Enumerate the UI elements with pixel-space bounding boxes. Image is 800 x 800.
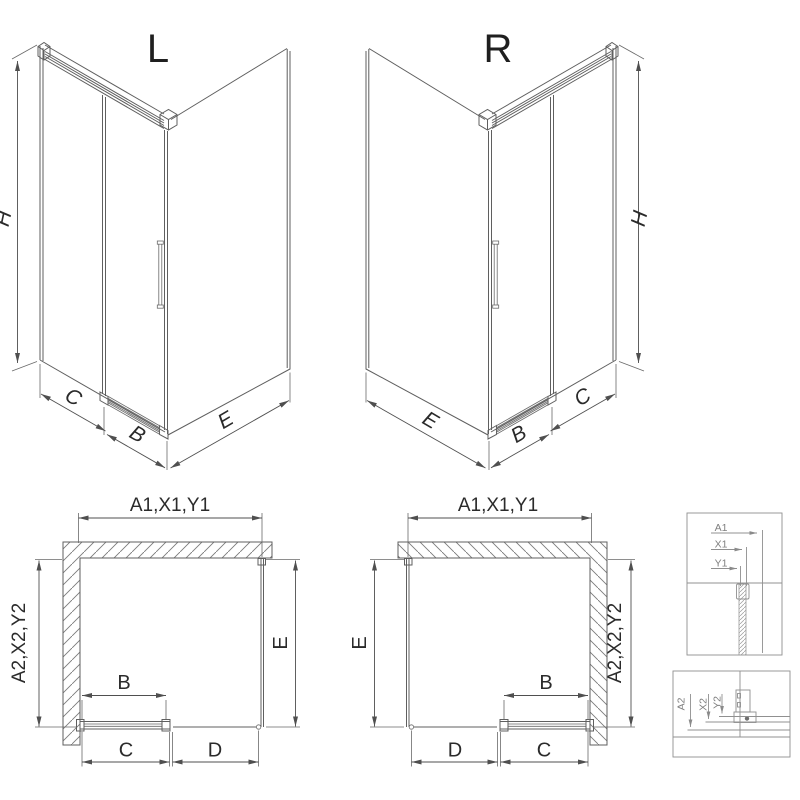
variant-label-right: R xyxy=(484,27,513,71)
plan-view-left: A1,X1,Y1 A2,X2,Y2 E B C D xyxy=(9,495,300,767)
variant-label-left: L xyxy=(147,27,169,71)
iso-view-right: R H E B C xyxy=(366,27,653,470)
wall-depth-dim-label: A2,X2,Y2 xyxy=(9,603,30,683)
detail-dim-a1-label: A1 xyxy=(715,522,728,534)
bottom-dim-c-label: C xyxy=(119,740,133,762)
roller-dot xyxy=(745,716,749,720)
width-dim-label: A1,X1,Y1 xyxy=(130,495,210,516)
shower-enclosure-technical-drawing: L H C B E R H E B C A1,X1,Y1 A2,X2,Y2 E … xyxy=(0,0,800,800)
height-dim-label: H xyxy=(627,208,653,228)
detail-dim-y1-label: Y1 xyxy=(715,558,728,570)
detail-dim-x2-label: X2 xyxy=(698,698,710,711)
width-dim-label: A1,X1,Y1 xyxy=(458,495,538,516)
drawing-sheet: L H C B E R H E B C A1,X1,Y1 A2,X2,Y2 E … xyxy=(0,0,800,800)
glass-depth-dim-label: E xyxy=(270,636,292,649)
return-panel-dim-label: E xyxy=(418,407,443,434)
detail-bottom-profile: A2 X2 Y2 xyxy=(673,671,790,757)
height-dim-label: H xyxy=(0,208,17,228)
door-dim-label: B xyxy=(507,421,531,448)
plan-view-right: A1,X1,Y1 A2,X2,Y2 E B D C xyxy=(349,495,635,767)
detail-dim-x1-label: X1 xyxy=(715,539,728,551)
wall-depth-dim-label: A2,X2,Y2 xyxy=(605,603,626,683)
door-dim-label: B xyxy=(117,672,130,694)
iso-view-left: L H C B E xyxy=(0,27,290,470)
detail-dim-a2-label: A2 xyxy=(676,697,688,710)
door-dim-label: B xyxy=(125,421,149,448)
door-dim-label: B xyxy=(539,672,552,694)
bottom-dim-d-label: D xyxy=(448,740,462,762)
glass-depth-dim-label: E xyxy=(349,636,371,649)
return-panel-dim-label: E xyxy=(214,406,239,433)
detail-top-profile: A1 X1 Y1 xyxy=(687,513,782,655)
detail-dim-y2-label: Y2 xyxy=(712,696,724,709)
bottom-dim-c-label: C xyxy=(537,740,551,762)
bottom-dim-d-label: D xyxy=(208,740,222,762)
